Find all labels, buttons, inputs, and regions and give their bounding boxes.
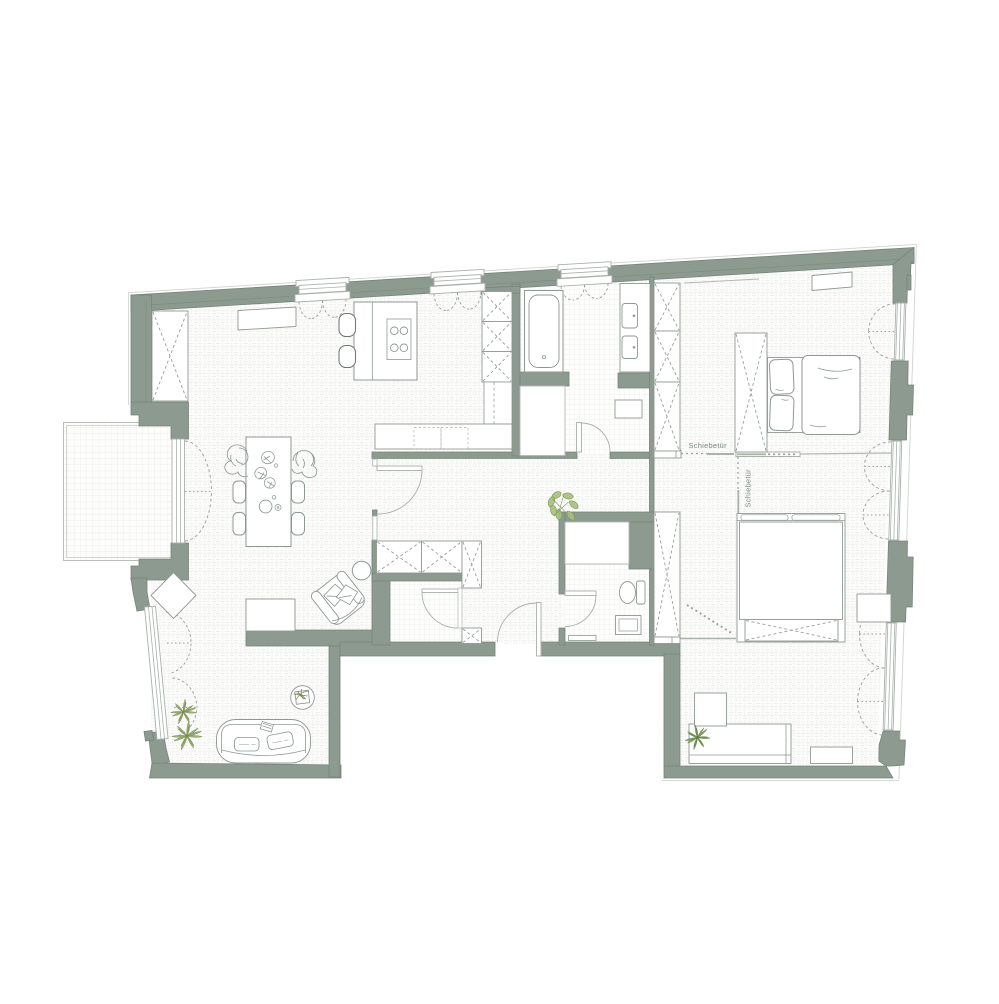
svg-text:Schiebetür: Schiebetür [744, 469, 753, 508]
svg-text:Schiebetür: Schiebetür [689, 441, 728, 450]
